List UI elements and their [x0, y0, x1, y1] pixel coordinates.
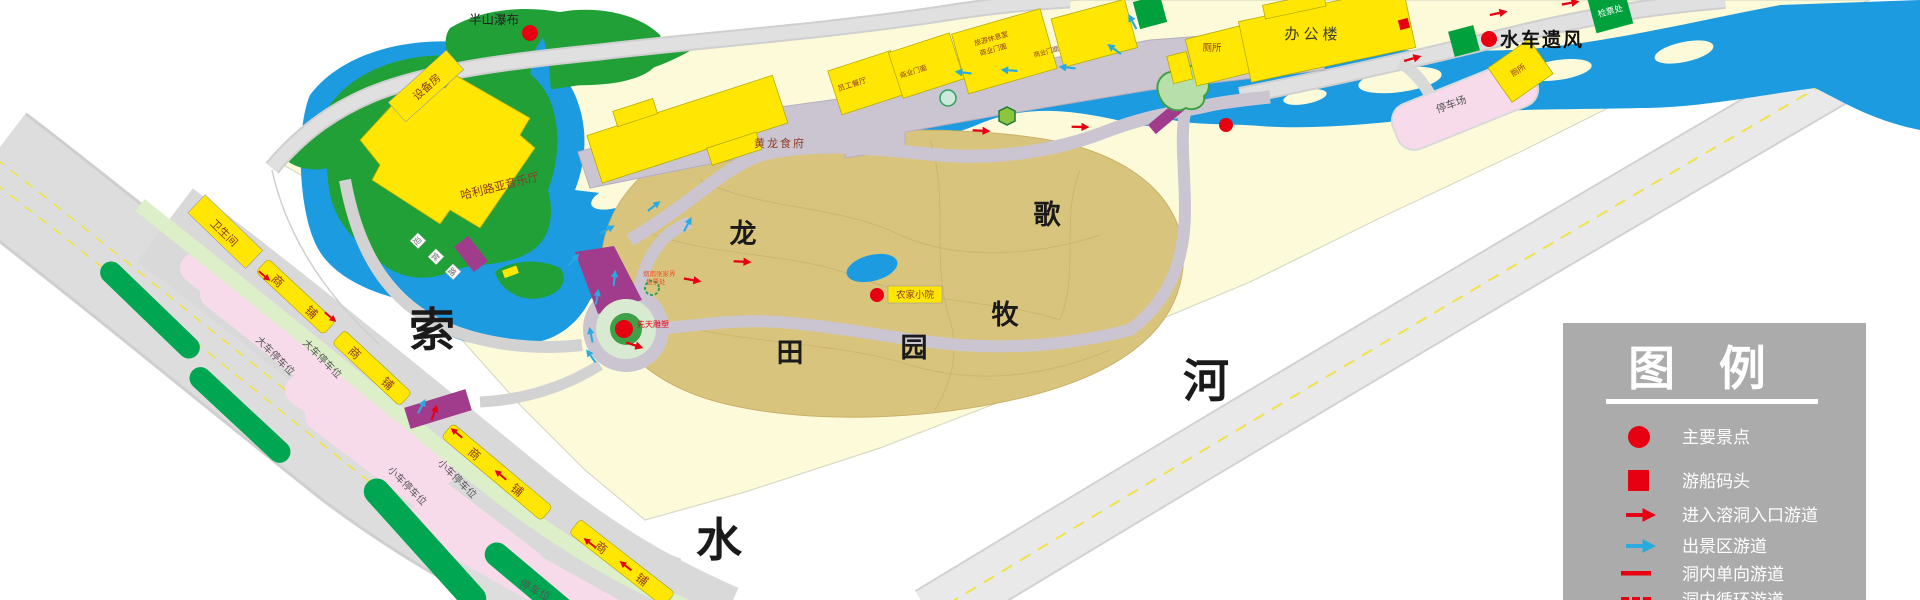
legend-item-label: 洞内单向游道 [1682, 565, 1784, 584]
geo-char-shui: 水 [696, 515, 743, 566]
geo-char-mu: 牧 [992, 300, 1020, 330]
waterfall-marker [522, 25, 538, 41]
legend-red-circle-icon [1628, 426, 1650, 448]
legend-title-underline [1606, 399, 1818, 404]
legend-item-label: 主要景点 [1682, 428, 1750, 447]
waterfall-label: 半山瀑布 [469, 13, 519, 27]
geo-char-tian: 田 [777, 338, 804, 368]
sculpture-label: 先天雕塑 [637, 319, 669, 329]
legend-item-label: 进入溶洞入口游道 [1682, 506, 1818, 525]
scenic-area-map: 设备房 卫生间 农家小院 商 铺 商 铺 商 铺 商 铺 迎 宾 路 [0, 0, 1920, 600]
legend-item-label: 洞内循环游道 [1682, 591, 1784, 600]
ticket-office-label-line2: 售票处 [646, 277, 666, 286]
legend-red-square-icon [1628, 470, 1649, 491]
geo-char-long: 龙 [730, 219, 757, 249]
legend: 图 例 主要景点 游船码头 进入溶洞入口游道 出景区游道 洞内单向游道 洞内循环… [1563, 323, 1866, 600]
map-canvas: 设备房 卫生间 农家小院 商 铺 商 铺 商 铺 商 铺 迎 宾 路 [0, 0, 1920, 600]
geo-char-ge: 歌 [1034, 200, 1062, 230]
pavilion-hexagon [999, 107, 1015, 125]
huanglong-restaurant-label: 黄龙食府 [754, 136, 806, 150]
ticket-office-label-line1: 烟雨张家界 [643, 269, 676, 278]
legend-item-label: 游船码头 [1682, 472, 1750, 491]
farmhouse-label: 农家小院 [896, 289, 935, 301]
waterwheel-label: 水车遗风 [1500, 28, 1584, 51]
waterwheel-marker [1481, 31, 1497, 47]
toilet-top-label: 厕所 [1202, 43, 1222, 54]
weir-circle [940, 90, 956, 106]
legend-red-line-icon [1621, 571, 1651, 576]
sculpture-marker [615, 320, 633, 338]
geo-char-he: 河 [1183, 356, 1229, 407]
office-building-label: 办公楼 [1284, 26, 1341, 43]
geo-char-suo: 索 [409, 305, 455, 356]
farmhouse-marker [870, 288, 884, 302]
farmland-area [600, 130, 1183, 417]
geo-char-yuan: 园 [901, 333, 928, 363]
legend-item-label: 出景区游道 [1682, 537, 1767, 556]
scenic-spot-marker [1219, 118, 1233, 132]
legend-title: 图 例 [1628, 344, 1782, 396]
